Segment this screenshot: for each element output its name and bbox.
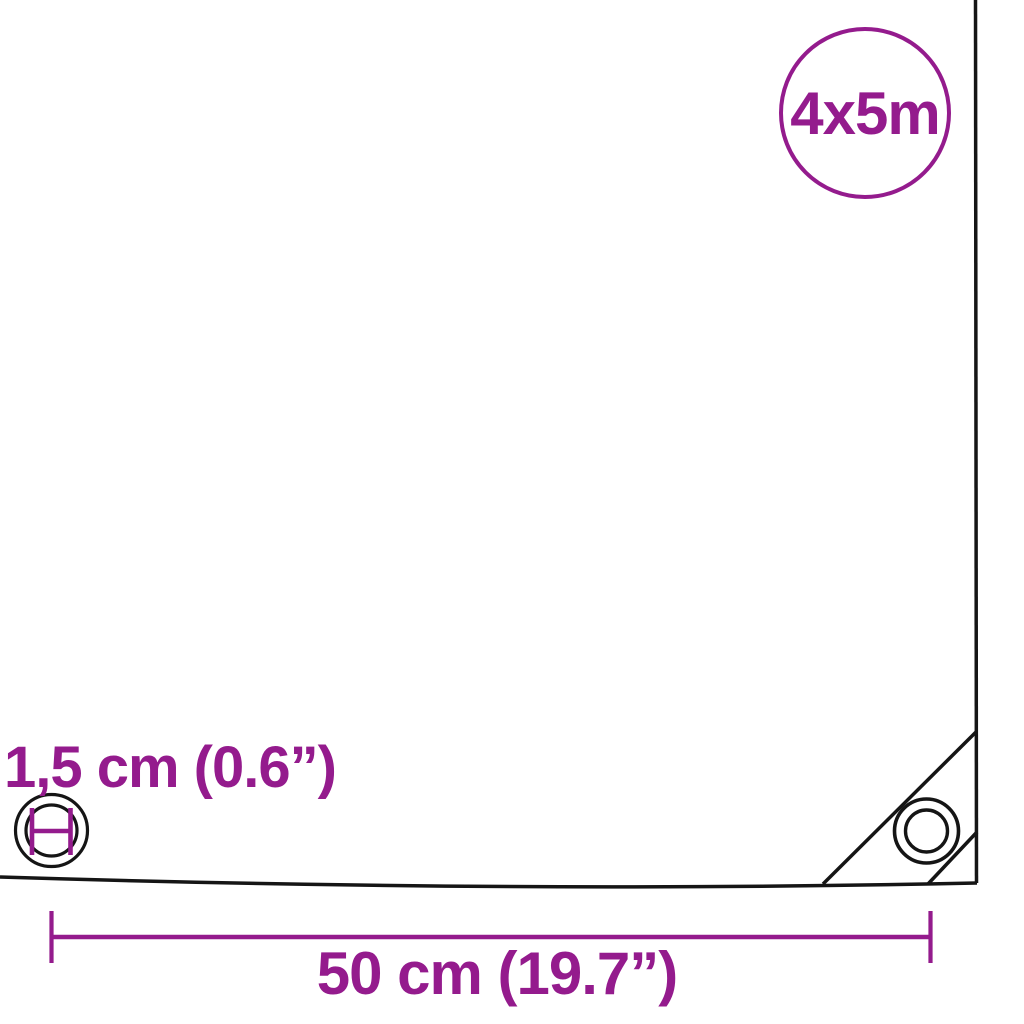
- size-badge-label: 4x5m: [790, 80, 939, 147]
- diagram-canvas: 1,5 cm (0.6”) 50 cm (19.7”) 4x5m: [0, 0, 1024, 1024]
- diameter-measure-marks: [32, 808, 71, 855]
- corner-seam-inner: [928, 832, 977, 884]
- product-dimension-diagram: 1,5 cm (0.6”) 50 cm (19.7”) 4x5m: [0, 0, 1024, 1024]
- size-badge: 4x5m: [781, 29, 949, 197]
- reinforced-corner-seams: [823, 732, 977, 884]
- tarp-right-edge: [976, 0, 977, 883]
- eyelet-diameter-icon: [16, 795, 88, 867]
- corner-eyelet-inner-ring: [906, 810, 948, 852]
- eyelet-spacing-label: 50 cm (19.7”): [317, 940, 678, 1007]
- corner-seam-outer: [823, 732, 976, 884]
- corner-eyelet-icon: [895, 799, 959, 863]
- eyelet-diameter-label: 1,5 cm (0.6”): [4, 735, 336, 800]
- spacing-dimension: 50 cm (19.7”): [52, 911, 931, 1007]
